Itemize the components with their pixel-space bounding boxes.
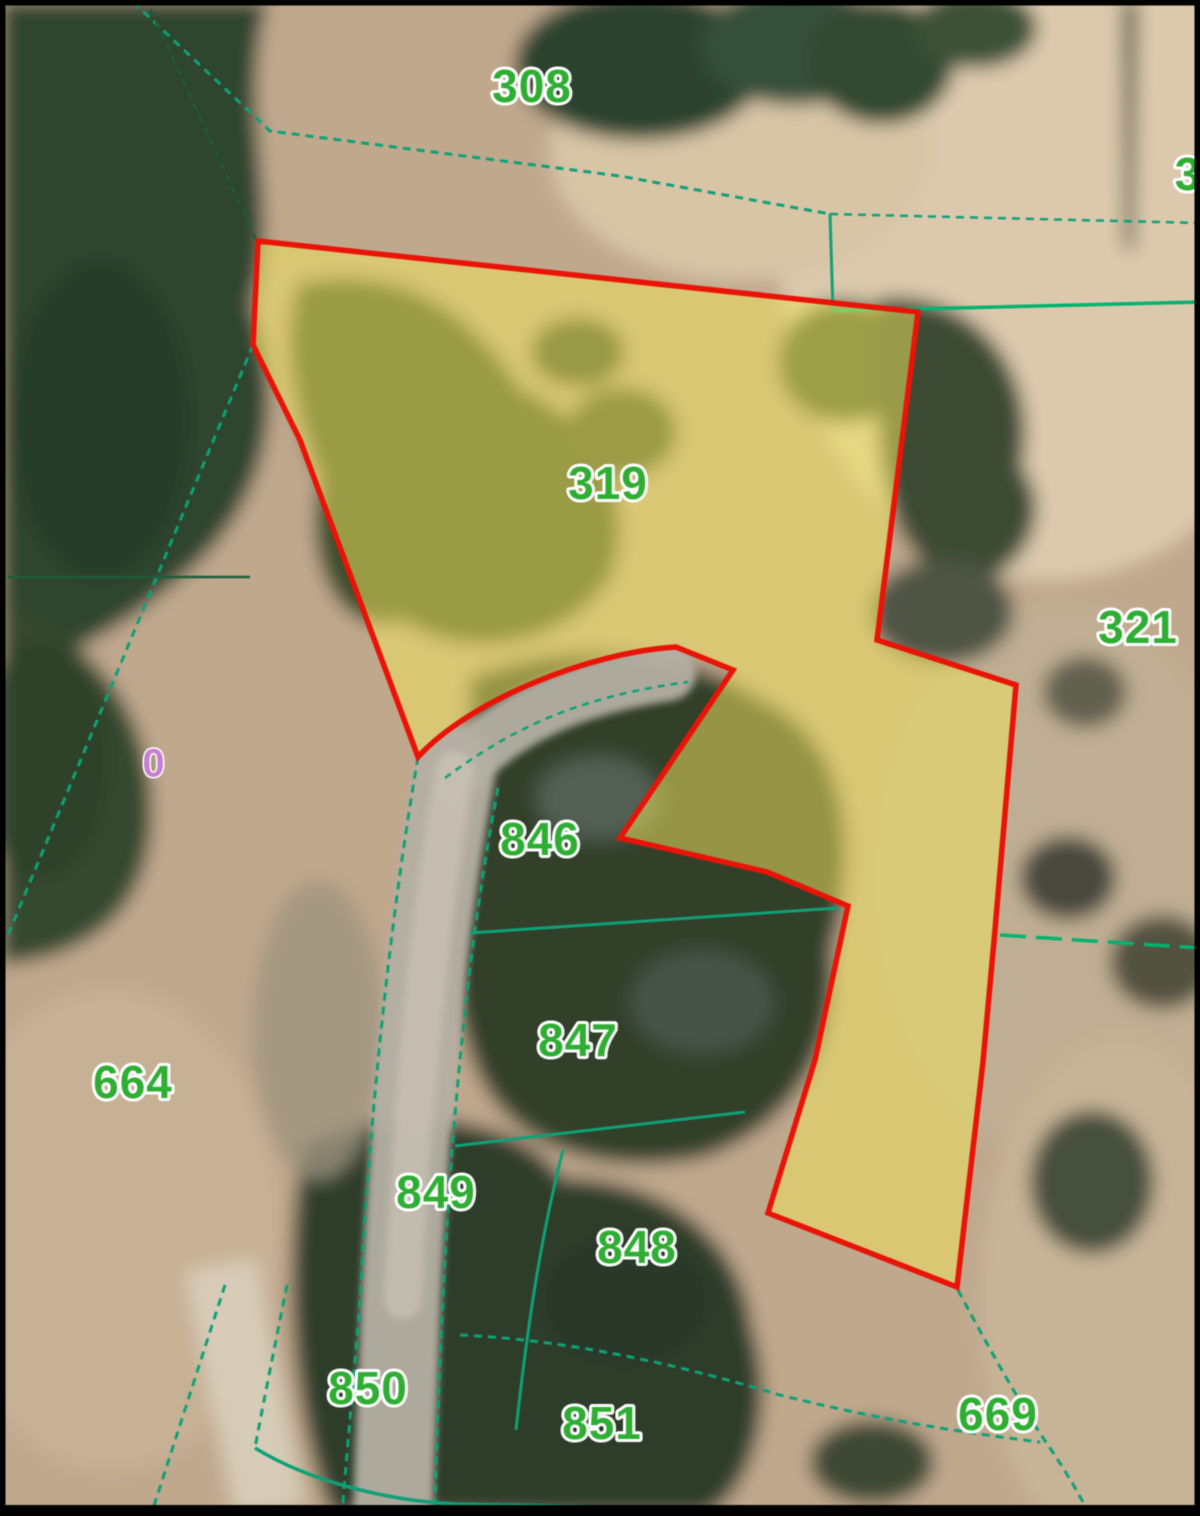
map-frame-bottom (0, 1505, 1200, 1516)
parcel-label-321[interactable]: 321 (1098, 601, 1178, 653)
terrain-patch (1020, 836, 1116, 920)
terrain-patch (1043, 656, 1127, 728)
aerial-imagery (0, 0, 1200, 1516)
map-viewport: 30833193218468476648498488508516690 (0, 0, 1200, 1516)
parcel-label-664[interactable]: 664 (93, 1056, 173, 1108)
parcel-label-847[interactable]: 847 (538, 1014, 618, 1066)
parcel-label-849[interactable]: 849 (396, 1166, 476, 1218)
terrain-patch (10, 260, 190, 580)
parcel-label-848[interactable]: 848 (597, 1221, 677, 1273)
parcel-label-669[interactable]: 669 (958, 1388, 1038, 1440)
map-canvas[interactable]: 30833193218468476648498488508516690 (0, 0, 1200, 1516)
parcel-label-319[interactable]: 319 (568, 457, 648, 509)
parcel-label-850[interactable]: 850 (328, 1362, 408, 1414)
terrain-patch (252, 880, 384, 1180)
terrain-patch (1030, 1110, 1154, 1254)
terrain-patch (810, 1420, 934, 1504)
parcel-label-851[interactable]: 851 (562, 1397, 642, 1449)
parcel-label-308[interactable]: 308 (492, 60, 572, 112)
point-marker[interactable]: 0 (142, 742, 165, 786)
parcel-label-846[interactable]: 846 (500, 813, 580, 865)
terrain-patch (630, 950, 774, 1054)
